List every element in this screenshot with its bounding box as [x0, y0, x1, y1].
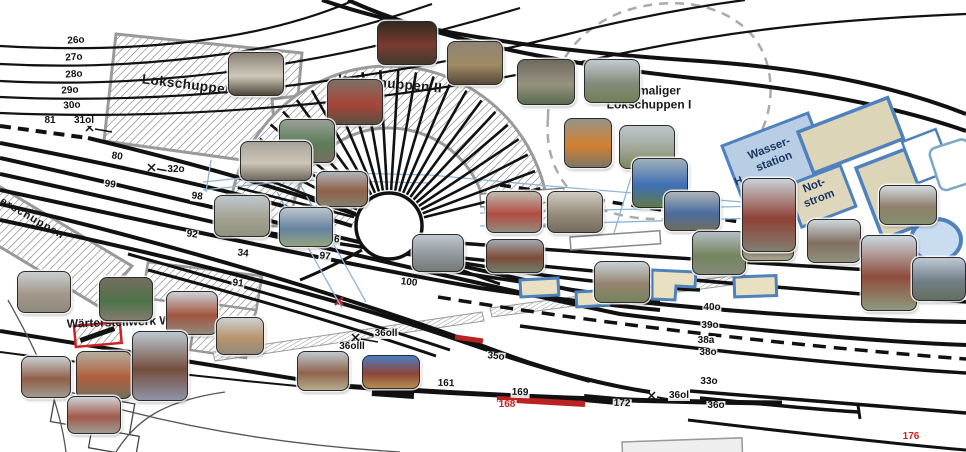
photo-blue-shelter: [279, 207, 333, 247]
photo-house-with-trees: [879, 185, 937, 225]
photo-freight-siding: [297, 351, 349, 391]
photo-thumbnails: [0, 0, 966, 452]
photo-parking-lot: [412, 234, 464, 272]
photo-brick-building: [316, 171, 368, 207]
photo-tall-signalbox: [132, 331, 188, 401]
photo-lever-frame: [76, 351, 132, 399]
photo-green-track-aisle: [692, 231, 746, 275]
photo-steel-frame-ruin: [584, 59, 640, 103]
photo-brick-rowhouse: [486, 239, 544, 273]
photo-heizhaus-tower: [742, 178, 796, 252]
photo-long-tan-building: [216, 317, 264, 355]
depot-track-plan: Lokschuppen III Lokschuppen II ehemalige…: [0, 0, 966, 452]
photo-green-loco-exhibit: [99, 277, 153, 321]
photo-station-platform: [17, 271, 71, 313]
photo-workshop-table: [447, 41, 503, 85]
photo-shed-aisle: [517, 59, 575, 105]
photo-meeting-room: [547, 191, 603, 233]
photo-field-ruins: [594, 261, 650, 303]
photo-country-lane: [214, 195, 270, 237]
photo-street-view: [807, 219, 861, 263]
photo-orange-crane: [564, 118, 612, 168]
photo-small-signalbox: [21, 356, 71, 398]
photo-blue-loader-wagon: [664, 191, 720, 231]
photo-red-cabinet-room: [327, 79, 383, 125]
photo-red-roof-house: [67, 396, 121, 434]
photo-water-tower: [861, 235, 917, 311]
photo-lokschuppen3-hall-interior: [228, 52, 284, 96]
photo-red-brick-house: [166, 291, 218, 335]
photo-red-train-panorama: [362, 355, 420, 389]
photo-signal-gantry: [912, 257, 966, 301]
photo-red-lockers: [486, 191, 542, 233]
photo-dark-engine-shed: [377, 21, 437, 65]
photo-vehicle-garage: [240, 141, 312, 181]
